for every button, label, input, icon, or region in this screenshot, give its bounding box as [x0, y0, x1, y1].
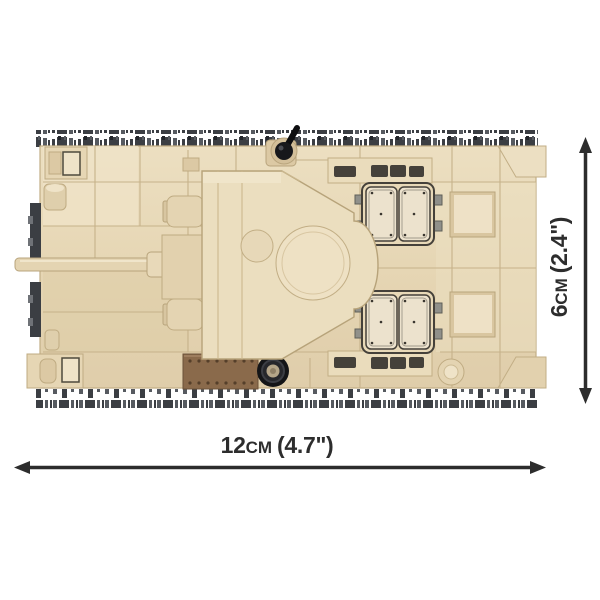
track-bottom: [36, 389, 538, 408]
width-inches: (4.7"): [277, 432, 333, 458]
gun-mantlet: [162, 235, 206, 299]
tank-top-view-illustration: [0, 0, 600, 600]
height-dimension-label: 6cm(2.4"): [547, 157, 575, 377]
mantlet-stud: [183, 158, 199, 171]
spare-wheel: [257, 355, 289, 387]
height-value: 6: [546, 305, 572, 318]
product-dimension-diagram: 12cm(4.7") 6cm(2.4"): [0, 0, 600, 600]
height-inches: (2.4"): [546, 217, 572, 273]
vent-grille-top: [328, 158, 432, 183]
stowage-box-bottom: [450, 292, 495, 337]
gun-barrel: [15, 258, 167, 271]
commander-hatch: [276, 226, 350, 300]
round-stud: [438, 359, 464, 385]
width-unit: cm: [246, 438, 272, 457]
stowage-box-top: [450, 192, 495, 237]
recuperator-bottom: [163, 299, 203, 330]
turret-front-highlight: [203, 172, 281, 183]
height-unit: cm: [552, 278, 571, 304]
recuperator-top: [163, 196, 203, 227]
width-value: 12: [221, 432, 246, 458]
width-arrow: [14, 461, 546, 474]
turret-hatch-small: [241, 230, 273, 262]
vent-grille-bottom: [328, 351, 432, 376]
width-dimension-label: 12cm(4.7"): [167, 433, 387, 458]
rear-left-bracket: [27, 354, 83, 388]
height-arrow: [579, 137, 592, 404]
front-left-bracket: [45, 147, 87, 179]
